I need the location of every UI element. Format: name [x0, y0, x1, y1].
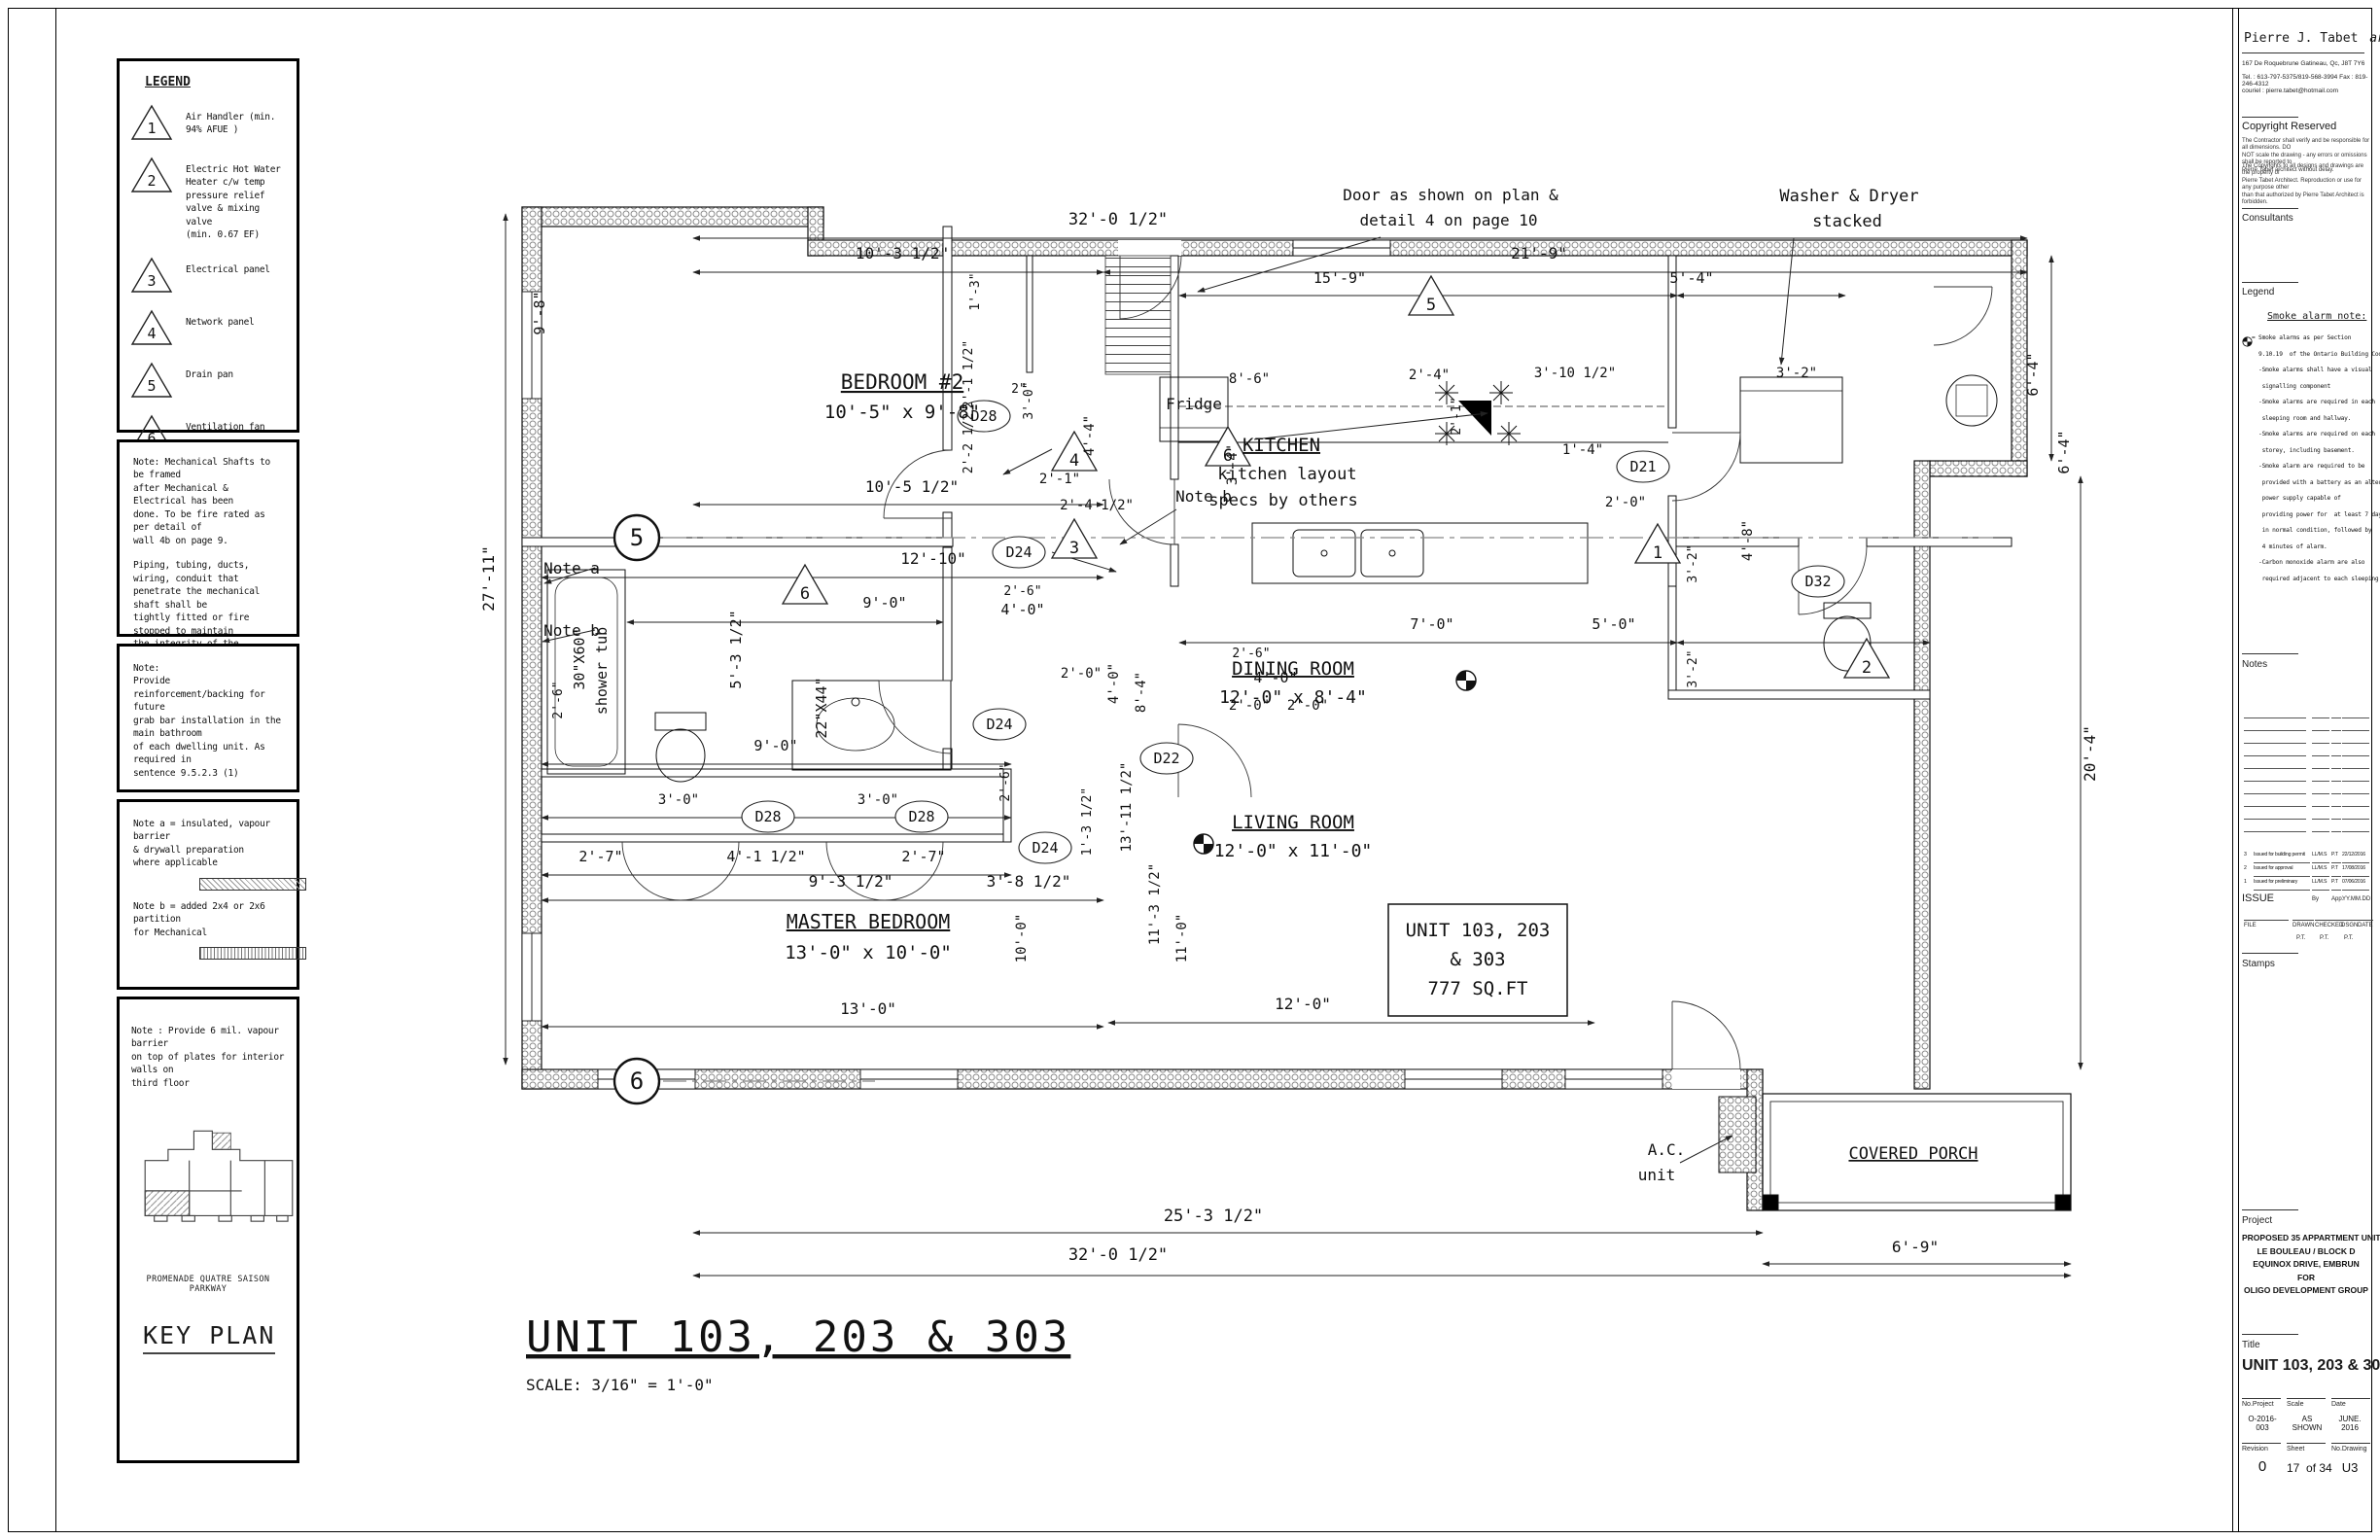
consultants-label: Consultants — [2242, 213, 2293, 224]
room-label-porch: COVERED PORCH — [1848, 1144, 1977, 1164]
smoke-note-line: in normal condition, followed by — [2252, 527, 2371, 534]
smoke-alarm-symbol — [1194, 834, 1213, 854]
fixture-label-fridge: Fridge — [1166, 395, 1222, 413]
plan-dimension-label: 6'-4" — [2055, 430, 2073, 473]
plan-dimension-label: 32'-0 1/2" — [1068, 1245, 1168, 1265]
plan-dimension-label: 3'-0" — [658, 792, 699, 808]
smoke-note-line: -Smoke alarms shall have a visual — [2252, 367, 2371, 373]
legend-triangle-icon: 4 — [129, 308, 174, 347]
keyplan-box: Note : Provide 6 mil. vapour barrier on … — [117, 997, 299, 1463]
svg-text:4: 4 — [147, 325, 156, 342]
legend-item: 3 Electrical panel — [129, 256, 289, 295]
divider — [2331, 1443, 2370, 1444]
svg-text:2: 2 — [147, 172, 156, 190]
keyplan-road-line2: PARKWAY — [131, 1284, 285, 1294]
triangle-marker-number: 5 — [1426, 296, 1436, 315]
legend-triangle-icon: 5 — [129, 361, 174, 400]
smoke-note-line: 9.10.19 of the Ontario Building Code — [2252, 351, 2380, 358]
plan-dimension-label: 9'-3 1/2" — [809, 872, 893, 891]
plan-dimension-label: 10'-0" — [1014, 914, 1030, 963]
plan-dimension-label: 8'-4" — [1134, 672, 1149, 713]
legend-item-text: Drain pan — [186, 361, 233, 381]
plan-dimension-label: 20'-4" — [2081, 725, 2099, 782]
plan-dimension-label: 1'-4" — [1562, 442, 1603, 458]
plan-dimension-label: 27'-11" — [479, 545, 498, 611]
washer-dryer-note: Washer & Dryer — [1779, 187, 1918, 206]
mech-shaft-note-box: Note: Mechanical Shafts to be framed aft… — [117, 439, 299, 637]
plan-dimension-label: 11'-0" — [1174, 914, 1190, 963]
note-mech-shaft-p1: Note: Mechanical Shafts to be framed aft… — [133, 456, 283, 547]
sheet-label: Sheet — [2287, 1446, 2304, 1452]
plan-dimension-label: 2'-6" — [1232, 647, 1270, 661]
plan-dimension-label: 9'-0" — [753, 737, 797, 754]
plan-dimension-label: stacked — [1812, 212, 1882, 231]
triangle-marker-number: 1 — [1653, 543, 1662, 563]
plan-dimension-label: 10'-3 1/2" — [856, 244, 949, 262]
plan-dimension-label: 13'-11 1/2" — [1119, 762, 1135, 853]
divider — [2242, 1334, 2298, 1335]
copyright-text-2: The Copyrights to all designs and drawin… — [2242, 163, 2370, 206]
project-line: OLIGO DEVELOPMENT GROUP — [2242, 1285, 2370, 1295]
plan-dimension-label: 4'-0" — [1253, 669, 1297, 686]
plan-dimension-label: 22"X44" — [813, 677, 830, 738]
door-note: Door as shown on plan & — [1343, 186, 1558, 204]
file-label: FILE — [2244, 920, 2289, 928]
scale-value: AS SHOWN — [2287, 1415, 2327, 1432]
plan-dimension-label: detail 4 on page 10 — [1359, 211, 1537, 229]
triangle-marker-number: 2 — [1862, 658, 1872, 678]
smoke-note-line: provided with a battery as an alternativ… — [2252, 479, 2380, 486]
no-drawing-value: U3 — [2329, 1460, 2370, 1475]
plan-dimension-label: 8'-6" — [1229, 371, 1270, 387]
plan-dimension-label: 2'-4 1/2" — [1060, 498, 1134, 513]
door-tag-label: D22 — [1153, 750, 1179, 767]
unit-tag-area: 777 SQ.FT — [1428, 978, 1528, 999]
plan-dimension-label: 2'-2 1/2" — [962, 405, 976, 473]
smoke-note-line: 4 minutes of alarm. — [2252, 543, 2327, 550]
legend-triangle-icon: 2 — [129, 156, 174, 194]
smoke-note-line: providing power for at least 7 days — [2252, 511, 2380, 518]
smoke-note-line: storey, including basement. — [2252, 447, 2355, 454]
legend-item-text: Electrical panel — [186, 256, 270, 276]
drawn-value: P.T. — [2296, 935, 2306, 941]
plan-dimension-label: 2'-6" — [998, 763, 1013, 801]
note-ab-box: Note a = insulated, vapour barrier & dry… — [117, 799, 299, 990]
smoke-note-line: -Smoke alarm are required to be — [2252, 463, 2364, 470]
triangle-marker-number: 3 — [1069, 539, 1079, 558]
note-vapour-barrier: Note : Provide 6 mil. vapour barrier on … — [131, 1025, 285, 1090]
title-block: Pierre J. Tabet architect 167 De Roquebr… — [2242, 0, 2370, 1540]
issue-blank-rules — [2331, 706, 2341, 840]
issue-date-label: YY.MM.DD — [2342, 896, 2370, 902]
smoke-note-line: required adjacent to each sleeping area. — [2252, 576, 2380, 582]
plan-dimension-label: 3'-2" — [1686, 649, 1700, 687]
unit-tag-line1: UNIT 103, 203 — [1406, 920, 1551, 941]
smoke-note-title: Smoke alarm note: — [2267, 311, 2366, 322]
plan-dimension-label: 2'-4" — [1409, 367, 1450, 383]
plan-dimension-label: 15'-9" — [1313, 269, 1366, 287]
smoke-note-line: signalling component — [2252, 383, 2330, 390]
plan-dimension-label: 2'-6" — [1003, 584, 1041, 599]
legend-item: 4 Network panel — [129, 308, 289, 347]
legend-title: LEGEND — [145, 75, 297, 89]
drawing-sheet: D28D24D24D22D24D28D28D21D32436651256 BED… — [0, 0, 2380, 1540]
section-marker-number: 5 — [630, 524, 644, 551]
plan-dimension-label: 4'-0" — [1106, 663, 1122, 704]
interior-walls — [522, 227, 2012, 842]
smoke-note-line: -Carbon monoxide alarm are also — [2252, 559, 2364, 566]
room-label-living: LIVING ROOM — [1232, 812, 1354, 833]
plan-dimension-label: 3'-2" — [1686, 544, 1700, 582]
note-grab-title: Note: — [133, 662, 283, 675]
divider — [2242, 953, 2298, 954]
plan-dimension-label: 25'-3 1/2" — [1164, 1207, 1263, 1226]
svg-text:1: 1 — [147, 120, 156, 137]
divider — [2331, 1398, 2370, 1399]
plan-dimension-label: 4'-8" — [1740, 520, 1756, 561]
plan-dimension-label: 30"X60" — [571, 628, 588, 689]
plan-dimension-label: 13'-0" x 10'-0" — [785, 942, 952, 963]
plan-dimension-label: 3'-0" — [1022, 381, 1036, 419]
stamps-label: Stamps — [2242, 959, 2275, 969]
divider — [2242, 653, 2298, 654]
door-tag-label: D28 — [908, 808, 934, 825]
note-grab-body: Provide reinforcement/backing for future… — [133, 675, 283, 780]
issue-blank-rules — [2342, 706, 2369, 840]
smoke-note-line: -Smoke alarms are required on each — [2252, 431, 2375, 437]
legend-label: Legend — [2242, 287, 2274, 297]
legend-item-text: Air Handler (min. 94% AFUE ) — [186, 103, 289, 137]
plan-dimension-label: 2'-0" — [1287, 698, 1328, 714]
note-a-text: Note a = insulated, vapour barrier & dry… — [133, 818, 283, 870]
project-line: LE BOULEAU / BLOCK D — [2242, 1246, 2370, 1256]
project-line: FOR — [2242, 1273, 2370, 1282]
dsgn-label: DSGN — [2341, 920, 2358, 928]
plan-dimension-label: 11'-3 1/2" — [1147, 863, 1163, 945]
plan-dimension-label: 5'-0" — [1592, 615, 1635, 633]
sheet-title: UNIT 103, 203 & 303 — [2242, 1357, 2370, 1375]
smoke-alarm-symbol — [1456, 671, 1476, 690]
no-project-label: No.Project — [2242, 1401, 2274, 1408]
plan-dimension-label: 2'-7" — [901, 848, 945, 865]
plan-dimension-label: 21'-9" — [1511, 244, 1567, 262]
plan-dimension-label: 2'-1 1/2" — [962, 340, 976, 408]
architect-phone: Tel. : 613-797-5375/819-568-3994 Fax : 8… — [2242, 74, 2370, 87]
ac-unit-label: A.C. — [1648, 1140, 1686, 1159]
door-tag-label: D21 — [1629, 458, 1656, 475]
legend-triangle-icon: 3 — [129, 256, 174, 295]
architect-address: 167 De Roquebrune Gatineau, Qc, J8T 7Y6 — [2242, 60, 2364, 67]
dsgn-value: P.T. — [2344, 935, 2354, 941]
plan-dimension-label: 12'-0" — [1275, 995, 1331, 1013]
divider — [2242, 52, 2364, 53]
room-label-master: MASTER BEDROOM — [787, 910, 951, 933]
dimension-lines — [506, 214, 2081, 1276]
plan-dimension-label: 5'-3 1/2" — [727, 610, 745, 688]
legend-item-text: Electric Hot Water Heater c/w temp press… — [186, 156, 289, 242]
no-project-value: O-2016-003 — [2242, 1415, 2283, 1432]
plan-scale: SCALE: 3/16" = 1'-0" — [526, 1376, 714, 1394]
note-b-swatch — [199, 947, 306, 960]
issue-blank-rules — [2244, 706, 2306, 840]
legend-triangle-icon: 1 — [129, 103, 174, 142]
issue-row: 2 Issued for approvalLL/M.S P.T17/08/201… — [2242, 865, 2370, 878]
plan-dimension-label: 12'-10" — [900, 549, 965, 568]
door-tag-label: D32 — [1804, 573, 1831, 590]
date-label: Date — [2331, 1401, 2346, 1408]
plan-dimension-label: unit — [1638, 1166, 1676, 1184]
grab-bar-note-box: Note: Provide reinforcement/backing for … — [117, 644, 299, 792]
plan-dimension-label: 3'-0" — [857, 792, 898, 808]
divider — [2242, 208, 2298, 209]
plan-dimension-label: 6'-9" — [1892, 1238, 1939, 1256]
plan-dimension-label: 2'-0" — [1605, 495, 1646, 510]
svg-text:5: 5 — [147, 377, 156, 395]
plan-dimension-label: shower tub — [593, 627, 611, 715]
divider — [2242, 1209, 2298, 1210]
copyright-label: Copyright Reserved — [2242, 121, 2336, 132]
note-a-callout: Note a — [543, 559, 600, 577]
divider — [2242, 282, 2298, 283]
revision-value: 0 — [2242, 1458, 2283, 1475]
architect-email: couriel : pierre.tabet@hotmail.com — [2242, 87, 2338, 94]
plan-dimension-label: 2'-1" — [1039, 472, 1080, 487]
issue-row: 1 Issued for preliminaryLL/M.S P.T07/06/… — [2242, 879, 2370, 892]
door-tag-label: D24 — [986, 716, 1012, 733]
plan-dimension-label: 3'-2" — [1776, 366, 1817, 381]
key-plan-drawing — [131, 1107, 306, 1271]
room-size-bedroom2: 10'-5" x 9'-8" — [824, 402, 980, 423]
plan-dimension-label: 4'-1 1/2" — [726, 848, 805, 865]
plan-dimension-label: 1'-3" — [968, 272, 983, 310]
plan-dimension-label: 32'-0 1/2" — [1068, 210, 1168, 229]
divider — [2242, 1398, 2281, 1399]
note-a-swatch — [199, 878, 306, 891]
keyplan-title: KEY PLAN — [143, 1321, 275, 1354]
date-col-label: DATE — [2358, 920, 2373, 928]
plan-dimension-label: 5'-4" — [1669, 269, 1713, 287]
ac-unit — [1719, 1097, 1756, 1172]
architect-name: Pierre J. Tabet architect — [2244, 31, 2380, 46]
door-tag-label: D28 — [754, 808, 781, 825]
unit-tag-line2: & 303 — [1450, 949, 1505, 970]
scale-label: Scale — [2287, 1401, 2304, 1408]
project-line: EQUINOX DRIVE, EMBRUN — [2242, 1259, 2370, 1269]
divider — [2287, 1443, 2326, 1444]
room-label-kitchen: KITCHEN — [1242, 435, 1320, 456]
project-line: PROPOSED 35 APPARTMENT UNIT — [2242, 1233, 2370, 1242]
smoke-note-line: = Smoke alarms as per Section — [2252, 334, 2351, 341]
architect-word: architect — [2369, 31, 2380, 46]
drawn-label: DRAWN — [2292, 920, 2314, 928]
svg-text:3: 3 — [147, 272, 156, 290]
issue-by-label: By — [2312, 896, 2319, 902]
issue-row: 3 Issued for building permitLL/M.S P.T22… — [2242, 852, 2370, 864]
leader-line — [1781, 238, 1794, 365]
sheet-value: 17 of 34 — [2287, 1461, 2327, 1475]
note-b-callout-kitchen: Note b — [1175, 487, 1232, 506]
no-drawing-label: No.Drawing — [2331, 1446, 2367, 1452]
plan-dimension-label: 3'-10 1/2" — [1534, 366, 1616, 381]
section-marker-number: 6 — [630, 1067, 644, 1095]
note-b-text: Note b = added 2x4 or 2x6 partition for … — [133, 900, 283, 939]
triangle-marker-number: 4 — [1069, 451, 1079, 471]
door-tag-label: D24 — [1005, 543, 1032, 561]
door-tag-label: D24 — [1032, 839, 1058, 857]
legend-box: LEGEND 1 Air Handler (min. 94% AFUE ) 2 … — [117, 58, 299, 433]
keyplan-road-line1: PROMENADE QUATRE SAISON — [131, 1275, 285, 1284]
issue-blank-rules — [2312, 706, 2329, 840]
plan-text: BEDROOM #210'-5" x 9'-8"KITCHENkitchen l… — [479, 186, 2099, 1394]
legend-item: 1 Air Handler (min. 94% AFUE ) — [129, 103, 289, 142]
plan-dimension-label: 2'-6" — [551, 681, 566, 718]
legend-item: 2 Electric Hot Water Heater c/w temp pre… — [129, 156, 289, 242]
plan-dimension-label: 4'-0" — [1000, 601, 1044, 618]
checked-value: P.T. — [2320, 935, 2329, 941]
legend-item: 5 Drain pan — [129, 361, 289, 400]
divider — [2242, 117, 2298, 118]
smoke-note-line: -Smoke alarms are required in each — [2252, 399, 2375, 405]
plan-dimension-label: 9'-8" — [531, 291, 548, 334]
legend-item-text: Ventilation fan — [186, 413, 264, 434]
smoke-note-line: sleeping room and hallway. — [2252, 415, 2351, 422]
room-label-bedroom2: BEDROOM #2 — [841, 370, 963, 394]
plan-dimension-label: 6'-4" — [2024, 352, 2042, 396]
issue-label: ISSUE — [2242, 892, 2274, 904]
plan-dimension-label: 3'-4" — [1225, 444, 1241, 485]
divider — [2287, 1398, 2326, 1399]
plan-dimension-label: 12'-0" x 11'-0" — [1214, 841, 1373, 861]
notes-label: Notes — [2242, 659, 2267, 670]
plan-dimension-label: 4'-4" — [1082, 415, 1098, 456]
plan-dimension-label: 7'-0" — [1410, 615, 1453, 633]
plan-dimension-label: 10'-5 1/2" — [865, 477, 959, 496]
smoke-note-line: power supply capable of — [2252, 495, 2341, 502]
plan-dimension-label: 1'-3 1/2" — [1080, 787, 1095, 856]
triangle-marker-number: 6 — [800, 584, 810, 604]
title-label: Title — [2242, 1340, 2260, 1350]
date-value: JUNE. 2016 — [2329, 1415, 2370, 1432]
plan-title: UNIT 103, 203 & 303 — [526, 1312, 1070, 1362]
plan-dimension-label: 3'-8 1/2" — [987, 872, 1071, 891]
revision-label: Revision — [2242, 1446, 2268, 1452]
exterior-walls — [522, 207, 2027, 1210]
plan-dimension-label: 2'-0" — [1061, 666, 1102, 682]
plan-dimension-label: 2'-1" — [1450, 397, 1464, 435]
plan-dimension-label: 2'-0" — [1229, 698, 1270, 714]
checked-label: CHECKED — [2315, 920, 2343, 928]
divider — [2242, 1443, 2281, 1444]
plan-dimension-label: 2'-7" — [578, 848, 622, 865]
plan-dimension-label: 9'-0" — [862, 594, 906, 612]
plan-dimension-label: 13'-0" — [840, 999, 896, 1018]
project-label: Project — [2242, 1215, 2272, 1226]
legend-item-text: Network panel — [186, 308, 254, 329]
laundry-fixtures — [1740, 375, 1997, 671]
floor-plan-svg: D28D24D24D22D24D28D28D21D32436651256 BED… — [0, 0, 2380, 1540]
stair-hatch — [1105, 256, 1171, 374]
